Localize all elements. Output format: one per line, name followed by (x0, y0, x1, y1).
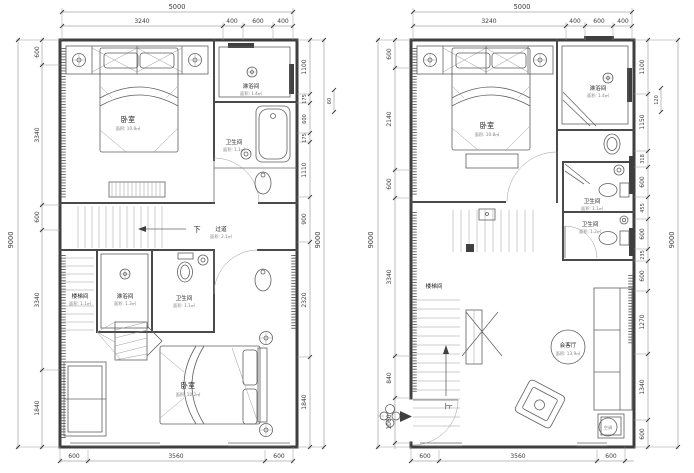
dim: 400 (226, 18, 238, 25)
dim: 455 (640, 203, 646, 213)
dim: 600 (252, 18, 264, 25)
dim-total-height: 9000 (367, 232, 375, 249)
room-label-toilet-top: 卫生间 (226, 138, 243, 146)
dim: 600 (605, 453, 617, 460)
dim: 600 (639, 428, 646, 440)
dim: 1100 (639, 59, 646, 74)
left-plan-dim-bottom: 600 3560 600 (58, 447, 295, 463)
room-area-toilet-top: 面积: 1.1㎡ (223, 146, 246, 153)
room-label-shower: 淋浴间 (590, 84, 607, 92)
room-label-bedroom-top: 卧室 (480, 121, 494, 130)
floor-plan-canvas: 卧室 面积: 10.8㎡ 淋浴间 面积: 1.4㎡ 卫生间 面积: 1.1㎡ (0, 0, 694, 473)
room-label-bedroom-top: 卧室 (121, 115, 135, 124)
left-plan-basin-lower (255, 269, 271, 291)
dim: 600 (593, 18, 605, 25)
left-plan-corridor-stairs (78, 206, 186, 248)
floor-plan-drawing: 卧室 面积: 10.8㎡ 淋浴间 面积: 1.4㎡ 卫生间 面积: 1.1㎡ (0, 0, 694, 473)
right-plan-stairs (413, 209, 533, 426)
room-label-toilet-lower: 卫生间 (582, 220, 599, 228)
dim: 1110 (301, 162, 308, 177)
left-plan-toilet-mid (178, 253, 209, 282)
dim: 175 (302, 133, 308, 143)
room-label-stairwell: 楼梯间 (426, 282, 443, 290)
room-area-toilet-lower: 面积: 1.2㎡ (579, 228, 602, 235)
room-area-living: 面积: 13.9㎡ (556, 350, 581, 357)
dim: 1840 (34, 400, 41, 415)
left-plan-cabinet (64, 362, 106, 436)
left-plan: 卧室 面积: 10.8㎡ 淋浴间 面积: 1.4㎡ 卫生间 面积: 1.1㎡ (7, 3, 336, 463)
room-label-bedroom-bottom: 卧室 (181, 381, 195, 390)
dim: 600 (68, 453, 80, 460)
dim-offset: 60 (327, 98, 333, 104)
room-area-bedroom-top: 面积: 10.8㎡ (116, 125, 141, 132)
right-plan-dim-left: 9000 600 2140 600 3340 840 1060 (367, 38, 411, 449)
dim: 600 (273, 453, 285, 460)
room-area-bedroom-top: 面积: 10.8㎡ (475, 131, 500, 138)
room-area-shower-top: 面积: 1.4㎡ (240, 90, 263, 97)
left-plan-walls (60, 40, 297, 447)
left-plan-doors (214, 158, 259, 294)
dim: 2320 (301, 292, 308, 307)
room-area-toilet-mid: 面积: 1.1㎡ (173, 302, 196, 309)
dim: 1340 (639, 379, 646, 394)
dim: 3240 (481, 18, 496, 25)
room-area-corridor: 面积: 2.1㎡ (210, 233, 233, 240)
dim: 3240 (134, 18, 149, 25)
room-area-bedroom-bottom: 面积: 10.2㎡ (176, 391, 201, 398)
left-plan-dim-top: 5000 3240 400 600 400 (60, 3, 295, 40)
left-plan-basin-upper (255, 172, 271, 194)
room-label-corridor: 过道 (215, 225, 227, 233)
right-plan: 卧室 面积: 10.8㎡ 淋浴间 面积: 1.4㎡ 卫生间 面积: 1.1㎡ (367, 3, 680, 463)
dim: 600 (386, 48, 393, 60)
right-plan-wardrobe (417, 46, 553, 74)
dim: 2140 (386, 111, 393, 126)
room-label-stairwell: 楼梯间 (72, 292, 89, 300)
dim: 840 (386, 372, 393, 384)
room-area-shower: 面积: 1.4㎡ (587, 92, 610, 99)
dim-total-height-right: 9000 (314, 232, 322, 249)
left-plan-bed-bottom (160, 346, 267, 424)
right-plan-sofa (594, 288, 632, 438)
dim: 318 (640, 154, 646, 164)
label-up: 上 (444, 402, 453, 409)
left-plan-radiator (109, 182, 165, 197)
right-plan-bed-top (452, 48, 530, 168)
left-plan-dim-left: 9000 600 3340 600 3340 1840 (7, 38, 60, 449)
label-down: 下 (193, 225, 200, 234)
room-area-toilet-upper: 面积: 1.1㎡ (581, 205, 604, 212)
dim: 600 (34, 211, 41, 223)
dim: 1840 (301, 394, 308, 409)
dim: 600 (639, 270, 646, 282)
left-plan-bedroom-fan-icons (260, 332, 273, 437)
dim-total-height-right: 9000 (668, 232, 676, 249)
dim: 1270 (639, 314, 646, 329)
dim-total-width: 5000 (169, 3, 186, 11)
room-label-toilet-mid: 卫生间 (176, 294, 193, 302)
right-plan-basin (604, 134, 620, 154)
dim: 400 (569, 18, 581, 25)
left-plan-bathtub (256, 106, 290, 162)
dim: 600 (302, 114, 308, 124)
dim: 600 (639, 176, 646, 188)
dim: 400 (277, 18, 289, 25)
right-plan-toilet-upper (565, 164, 629, 197)
room-label-shower-top: 淋浴间 (243, 82, 260, 90)
room-label-living: 会客厅 (560, 341, 577, 349)
right-plan-dim-bottom: 600 3560 600 (409, 447, 634, 463)
dim: 400 (617, 18, 629, 25)
dim: 600 (386, 178, 393, 190)
right-plan-dim-top: 5000 3240 400 600 400 (411, 3, 634, 40)
room-area-stairwell: 面积: 1.1㎡ (69, 300, 92, 307)
left-plan-dim-right: 1100 175 600 175 1110 900 2320 1840 60 9… (297, 38, 336, 449)
dim: 235 (640, 250, 646, 260)
dim: 1060 (386, 414, 393, 429)
dim: 3340 (34, 292, 41, 307)
dim: 175 (302, 94, 308, 104)
dim-offset: 120 (654, 95, 660, 105)
dim: 900 (301, 213, 308, 225)
dim: 1100 (301, 59, 308, 74)
right-plan-dim-right: 1100 1150 318 600 455 600 235 600 1270 1… (634, 38, 680, 449)
dim-total-width: 5000 (514, 3, 531, 11)
dim: 600 (419, 453, 431, 460)
right-plan-toilet-lower (599, 216, 629, 245)
dim: 3560 (168, 453, 183, 460)
dim: 1150 (639, 114, 646, 129)
dim: 3340 (386, 269, 393, 284)
label-ac: 空调 (604, 424, 612, 431)
dim-total-height: 9000 (7, 232, 15, 249)
room-area-shower-mid: 面积: 1.3㎡ (114, 300, 137, 307)
room-label-shower-mid: 淋浴间 (117, 292, 134, 300)
dim: 600 (34, 46, 41, 58)
left-plan-wardrobe (66, 46, 208, 74)
dim: 3340 (34, 127, 41, 142)
left-plan-shower-mid (101, 254, 148, 328)
right-plan-armchair (514, 379, 566, 430)
dim: 3560 (510, 453, 525, 460)
right-plan-doors (413, 152, 597, 445)
room-label-toilet-upper: 卫生间 (584, 197, 601, 205)
dim: 600 (639, 228, 646, 240)
